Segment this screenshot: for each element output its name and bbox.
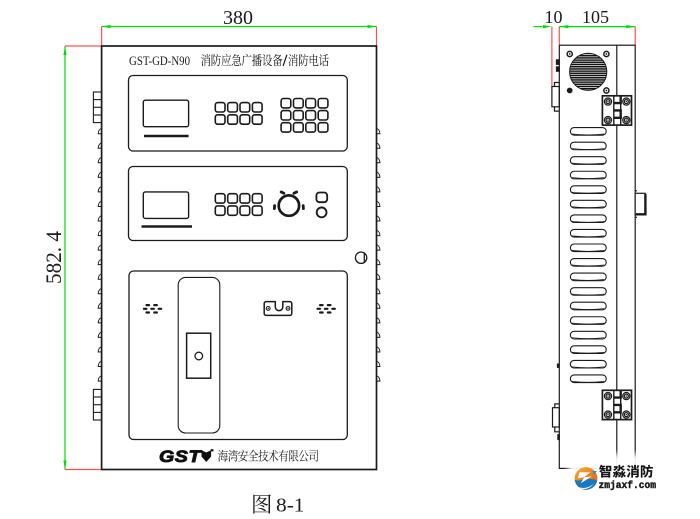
svg-text:zmjaxf.com: zmjaxf.com [599, 480, 657, 492]
svg-text:GST: GST [159, 447, 202, 466]
svg-text:582. 4: 582. 4 [41, 231, 66, 284]
svg-text:380: 380 [223, 7, 253, 29]
svg-text:8-1: 8-1 [276, 495, 305, 517]
svg-text:10: 10 [545, 7, 563, 27]
svg-text:105: 105 [582, 7, 609, 27]
svg-text:GST-GD-N90: GST-GD-N90 [129, 54, 190, 68]
